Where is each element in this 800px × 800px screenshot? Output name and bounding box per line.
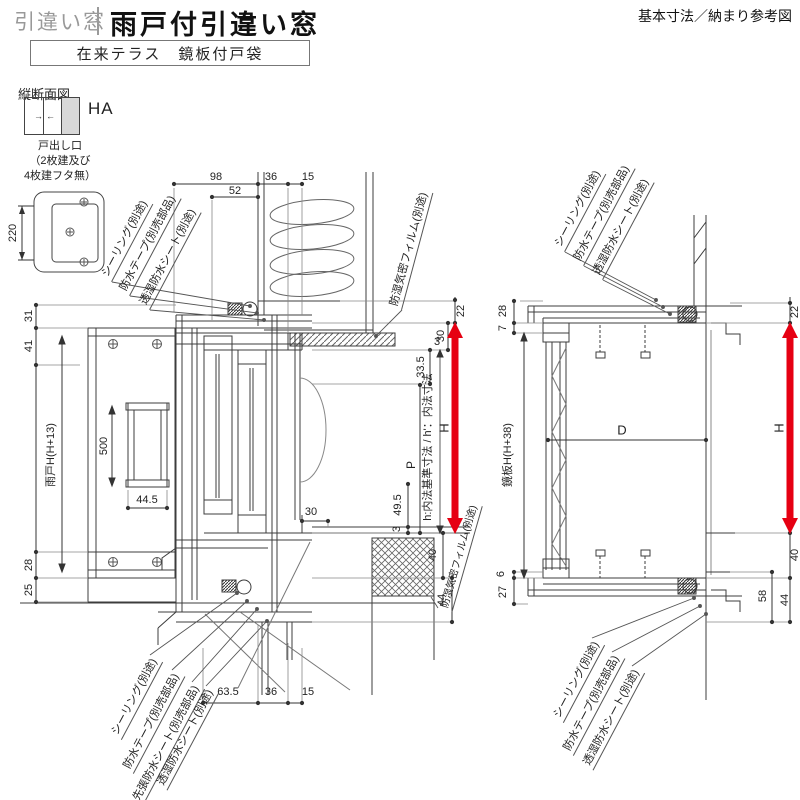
corner-note: 基本寸法／納まり参考図	[638, 6, 792, 26]
dim-3-bottom: 3	[391, 526, 403, 532]
arrow-left-icon: ←	[46, 111, 55, 121]
dim-28-right-drawing: 28	[497, 305, 509, 317]
dim-36-bottom: 36	[265, 686, 277, 698]
dim-52: 52	[229, 185, 241, 197]
shutter-box-cell	[61, 98, 79, 134]
dim-22-left-drawing: 22	[455, 305, 467, 317]
dim-3-top: 3	[434, 336, 440, 348]
dim-44-right-drawing: 44	[779, 594, 791, 606]
dim-22-right-drawing: 22	[789, 306, 800, 318]
dim-H-left-drawing: H	[437, 423, 452, 432]
dim-63-5: 63.5	[217, 686, 238, 698]
dim-15-top: 15	[302, 171, 314, 183]
dim-49-5: 49.5	[392, 494, 404, 515]
dim-25: 25	[23, 584, 35, 596]
arrow-right-icon: →	[34, 111, 43, 121]
icon-divider	[43, 98, 44, 134]
page-title: 雨戸付引違い窓	[110, 3, 320, 42]
dim-30-horizontal: 30	[305, 506, 317, 518]
header-divider	[97, 7, 99, 35]
dim-44-5: 44.5	[136, 494, 157, 506]
dim-H-right-drawing: H	[772, 423, 787, 432]
drawing-page: 引違い窓 雨戸付引違い窓 基本寸法／納まり参考図 在来テラス 鏡板付戸袋 縦断面…	[0, 0, 800, 800]
section-drawing-linework	[0, 0, 800, 800]
dim-98: 98	[210, 171, 222, 183]
dim-7: 7	[497, 325, 509, 331]
dim-28-left: 28	[23, 559, 35, 571]
dim-41: 41	[23, 340, 35, 352]
plan-code-label: HA	[88, 99, 114, 119]
dim-6: 6	[495, 571, 507, 577]
dim-27: 27	[497, 586, 509, 598]
dim-P: P	[404, 461, 418, 469]
subtitle-label: 在来テラス 鏡板付戸袋	[77, 43, 264, 64]
door-outlet-label: 戸出し口 （2枚建及び 4枚建フタ無）	[6, 139, 114, 184]
window-category-label: 引違い窓	[14, 6, 106, 36]
dim-500: 500	[98, 437, 110, 455]
inner-base-dim-label: h:内法基準寸法 / h'：内法寸法	[419, 373, 435, 521]
subtitle-box: 在来テラス 鏡板付戸袋	[30, 40, 310, 66]
dim-58: 58	[757, 590, 769, 602]
dim-36-top: 36	[265, 171, 277, 183]
dim-kagamiita-height: 鏡板H(H+38)	[499, 423, 515, 487]
dim-D: D	[617, 423, 626, 438]
dim-31: 31	[23, 310, 35, 322]
dim-220: 220	[7, 224, 19, 242]
dim-40-right-drawing: 40	[789, 549, 800, 561]
window-type-icon: → ←	[24, 97, 80, 135]
dim-15-bottom: 15	[302, 686, 314, 698]
dim-40-left-drawing: 40	[427, 549, 439, 561]
dim-amado-height: 雨戸H(H+13)	[42, 423, 58, 487]
